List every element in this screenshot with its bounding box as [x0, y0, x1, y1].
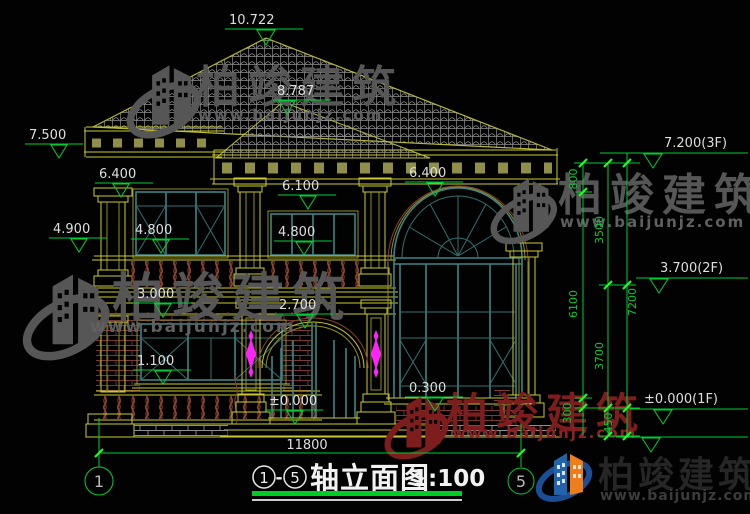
elevation-label-4800-left: 4.800 — [135, 223, 172, 238]
axis-bubble-5: 5 — [516, 472, 526, 491]
footer-logo-icon — [533, 453, 595, 506]
elevation-label-3000: 3.000 — [137, 287, 174, 302]
elevation-label-6100: 6.100 — [282, 179, 319, 194]
elevation-label-1100: 1.100 — [137, 354, 174, 369]
axis-bubble-1: 1 — [94, 472, 104, 491]
footer-url-text: www.baijunjz.com — [600, 488, 750, 504]
watermark-right: 柏竣建筑 www.baijunjz.com — [487, 170, 750, 250]
cad-elevation-screenshot: 柏竣建筑 www.baijunjz.com 柏竣建筑 www.baijunjz.… — [0, 0, 750, 514]
vdim-3700: 3700 — [593, 342, 606, 370]
elevation-label-10722: 10.722 — [229, 13, 275, 28]
elevation-label-2700: 2.700 — [279, 298, 316, 313]
vdim-300: 300 — [561, 403, 574, 424]
elevation-label-4800-mid: 4.800 — [278, 225, 315, 240]
title-axis-to: 5 — [290, 469, 300, 487]
watermark-url-text: www.baijunjz.com — [90, 317, 296, 337]
title-underline-2 — [252, 499, 462, 501]
title-underline — [252, 491, 462, 496]
vdim-800: 800 — [567, 169, 580, 190]
title-axis-separator: - — [275, 468, 282, 488]
elevation-label-6400-right: 6.400 — [409, 166, 446, 181]
elevation-label-7500: 7.500 — [29, 128, 66, 143]
watermark-url-text: www.baijunjz.com — [560, 213, 745, 231]
pilaster-ornament-left — [246, 330, 256, 378]
elevation-label-zero-1f: ±0.000(1F) — [644, 392, 718, 407]
pilaster-ornament-right — [371, 330, 381, 378]
elevation-drawing: 柏竣建筑 www.baijunjz.com 柏竣建筑 www.baijunjz.… — [0, 0, 750, 514]
footer-logo: 柏竣建筑 www.baijunjz.com — [533, 453, 750, 506]
elevation-label-zero-door: ±0.000 — [269, 394, 317, 409]
vdim-3500: 3500 — [593, 216, 606, 244]
vdim-450: 450 — [602, 413, 615, 434]
elevation-label-4900: 4.900 — [53, 222, 90, 237]
elevation-label-8787: 8.787 — [277, 84, 314, 99]
title-axis-from: 1 — [259, 469, 269, 487]
drawing-title: 1 - 5 轴立面图 1:100 — [252, 461, 485, 501]
title-scale: 1:100 — [412, 466, 485, 492]
vdim-7200: 7200 — [626, 288, 639, 316]
elevation-label-3700-2f: 3.700(2F) — [660, 261, 723, 276]
elevation-label-6400-left: 6.400 — [99, 167, 136, 182]
elevation-label-0300: 0.300 — [409, 381, 446, 396]
vdim-6100: 6100 — [567, 290, 580, 318]
right-center-pilaster-2f — [359, 178, 391, 286]
elevation-label-7200-3f: 7.200(3F) — [664, 136, 727, 151]
hdim-total-label: 11800 — [286, 438, 327, 453]
